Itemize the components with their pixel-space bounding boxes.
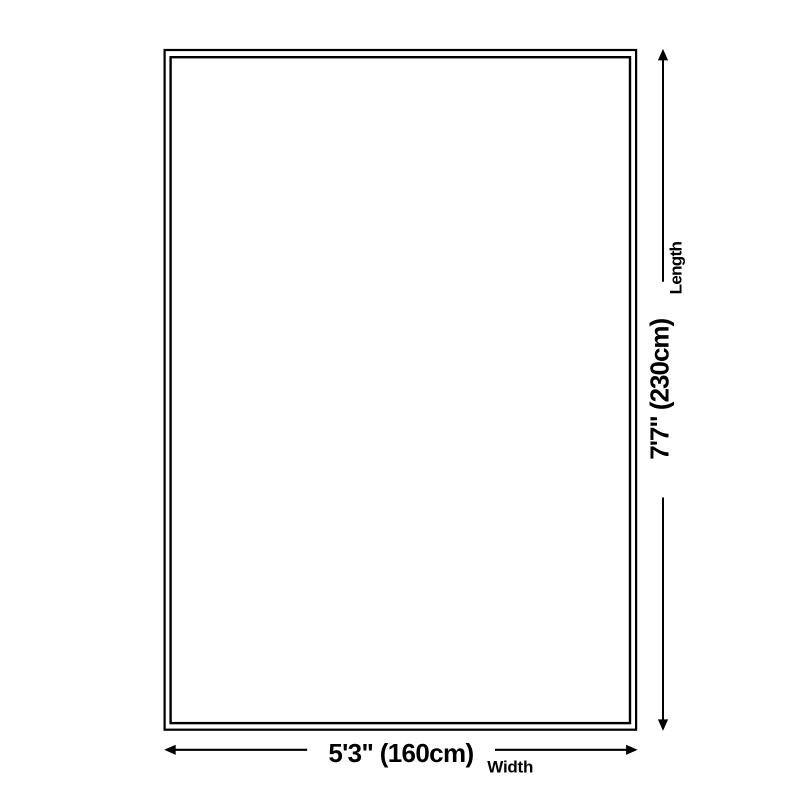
svg-text:7'7" (230cm): 7'7" (230cm) — [645, 318, 675, 459]
svg-text:Width: Width — [487, 757, 533, 776]
svg-text:Length: Length — [667, 242, 686, 295]
svg-text:5'3" (160cm): 5'3" (160cm) — [328, 738, 473, 768]
